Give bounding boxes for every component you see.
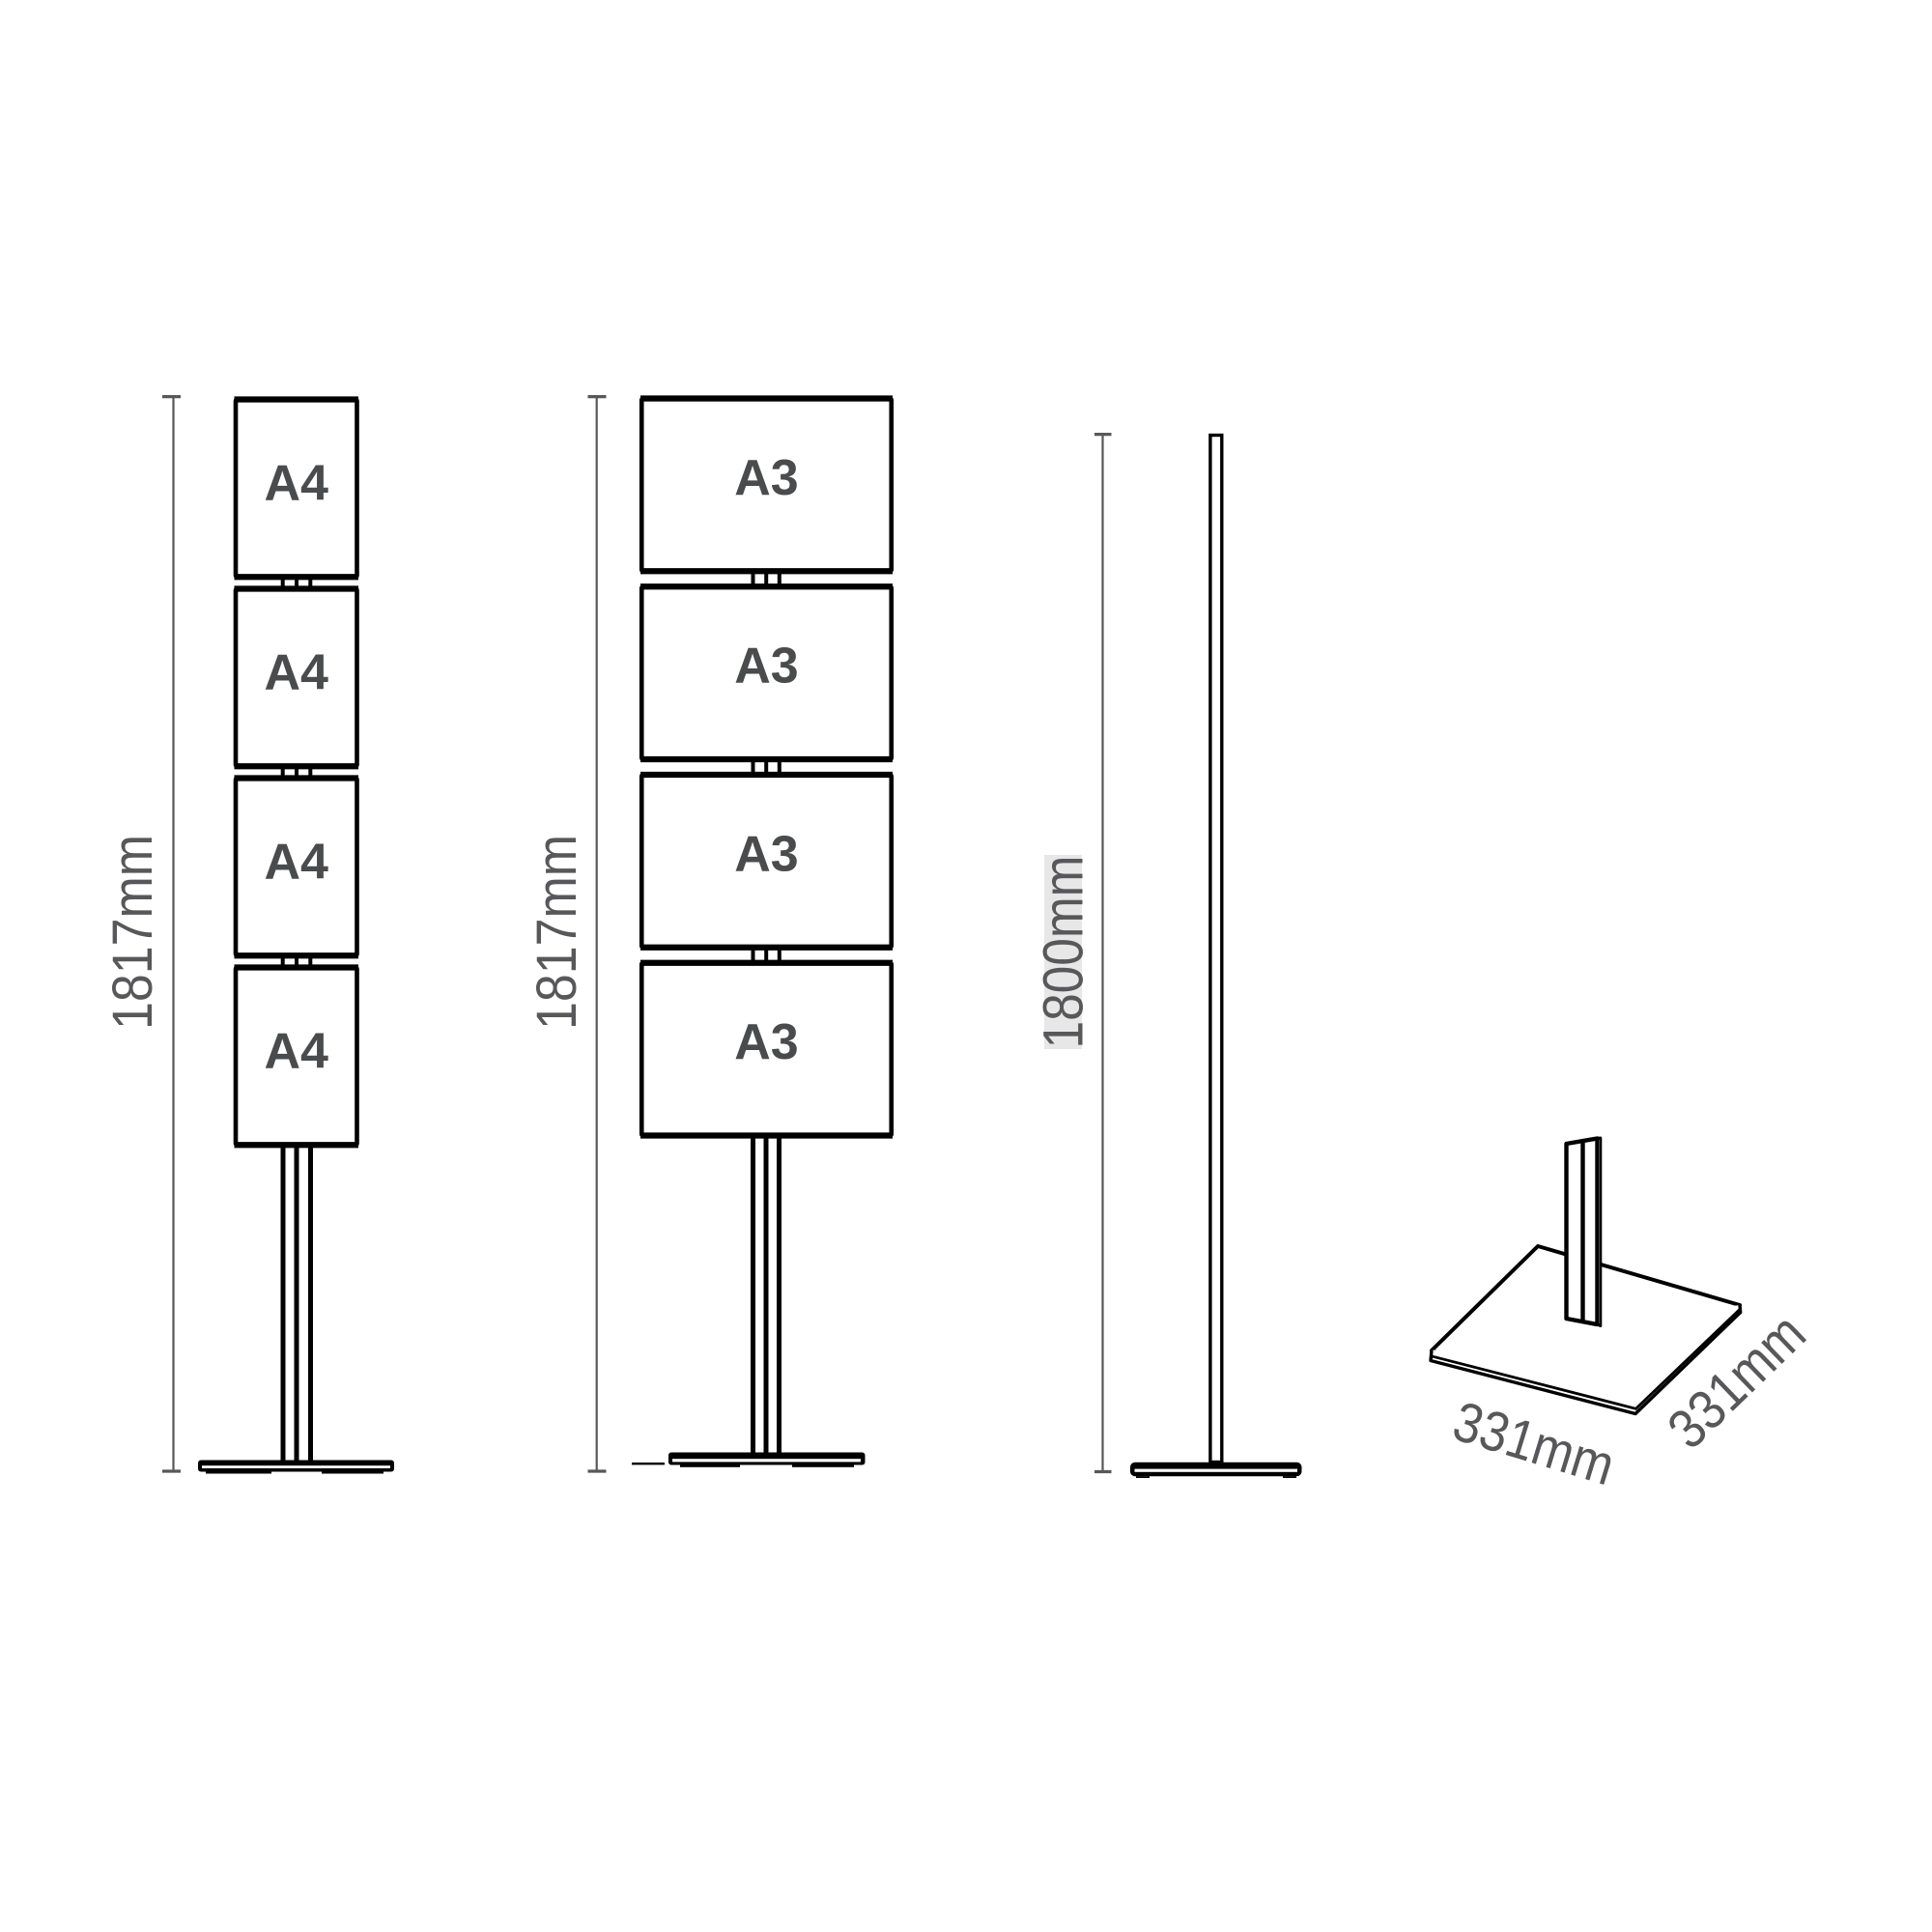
svg-text:A4: A4 — [264, 455, 328, 511]
svg-text:A4: A4 — [264, 644, 328, 700]
svg-text:A4: A4 — [264, 1023, 328, 1079]
svg-text:1817mm: 1817mm — [526, 835, 588, 1030]
svg-text:A3: A3 — [734, 450, 798, 506]
svg-text:A3: A3 — [734, 639, 798, 695]
svg-text:A3: A3 — [734, 1014, 798, 1070]
svg-text:A3: A3 — [734, 826, 798, 882]
svg-text:1817mm: 1817mm — [101, 835, 164, 1030]
svg-text:1800mm: 1800mm — [1033, 856, 1095, 1049]
svg-text:A4: A4 — [264, 834, 328, 890]
